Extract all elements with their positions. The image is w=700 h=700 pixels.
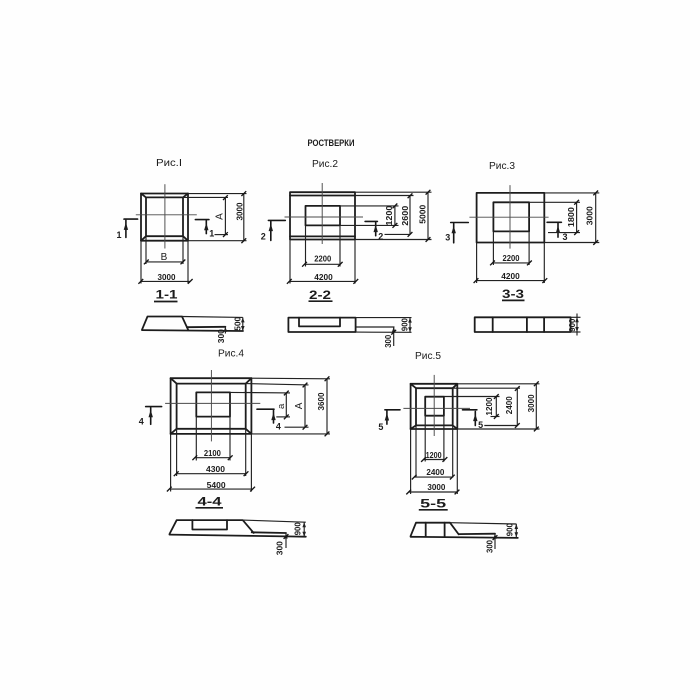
svg-text:3000: 3000: [158, 272, 176, 282]
svg-text:5-5: 5-5: [420, 497, 446, 511]
svg-text:2200: 2200: [503, 253, 520, 263]
svg-text:3000: 3000: [427, 482, 445, 492]
svg-text:Рис.I: Рис.I: [156, 158, 182, 169]
svg-text:Рис.2: Рис.2: [312, 159, 338, 170]
svg-text:500: 500: [233, 316, 242, 331]
svg-text:А: А: [294, 402, 305, 409]
svg-text:2400: 2400: [426, 467, 444, 477]
svg-text:3000: 3000: [526, 394, 536, 412]
svg-text:2400: 2400: [504, 396, 514, 414]
svg-text:1200: 1200: [426, 450, 442, 460]
svg-text:900: 900: [293, 522, 302, 536]
svg-text:2-2: 2-2: [309, 290, 331, 302]
svg-text:а: а: [276, 403, 287, 409]
svg-text:4: 4: [276, 421, 281, 431]
svg-text:1: 1: [116, 230, 121, 240]
svg-text:5: 5: [378, 422, 383, 432]
svg-text:1: 1: [209, 229, 214, 239]
svg-text:300: 300: [486, 539, 495, 553]
svg-text:4200: 4200: [314, 272, 333, 282]
svg-text:Рис.5: Рис.5: [415, 351, 441, 362]
svg-text:2200: 2200: [314, 254, 331, 264]
svg-text:900: 900: [400, 318, 409, 332]
svg-text:300: 300: [217, 329, 226, 344]
svg-text:3: 3: [562, 232, 567, 242]
svg-text:300: 300: [275, 541, 284, 556]
svg-text:4: 4: [139, 417, 144, 427]
svg-text:3: 3: [445, 233, 450, 243]
svg-text:В: В: [161, 252, 168, 263]
svg-text:А: А: [215, 213, 226, 220]
svg-text:2100: 2100: [204, 448, 221, 458]
svg-text:1200: 1200: [484, 397, 494, 415]
svg-text:3600: 3600: [316, 392, 326, 410]
svg-text:5000: 5000: [418, 205, 428, 224]
svg-text:4-4: 4-4: [198, 494, 222, 508]
svg-text:3-3: 3-3: [502, 289, 524, 301]
svg-text:1200: 1200: [384, 205, 394, 225]
svg-text:Рис.4: Рис.4: [218, 349, 244, 360]
svg-text:1-1: 1-1: [156, 290, 179, 302]
svg-text:4300: 4300: [206, 464, 225, 474]
svg-text:РОСТВЕРКИ: РОСТВЕРКИ: [308, 138, 355, 149]
svg-text:4200: 4200: [501, 271, 520, 281]
svg-text:3000: 3000: [585, 206, 595, 225]
svg-text:3000: 3000: [234, 202, 244, 220]
svg-text:1800: 1800: [566, 207, 576, 227]
svg-text:2: 2: [261, 232, 266, 242]
svg-text:5400: 5400: [207, 480, 226, 490]
svg-text:2600: 2600: [400, 205, 410, 225]
svg-text:300: 300: [384, 334, 393, 348]
svg-text:Рис.3: Рис.3: [489, 161, 515, 172]
svg-text:900: 900: [506, 523, 515, 537]
svg-text:900: 900: [568, 318, 577, 332]
